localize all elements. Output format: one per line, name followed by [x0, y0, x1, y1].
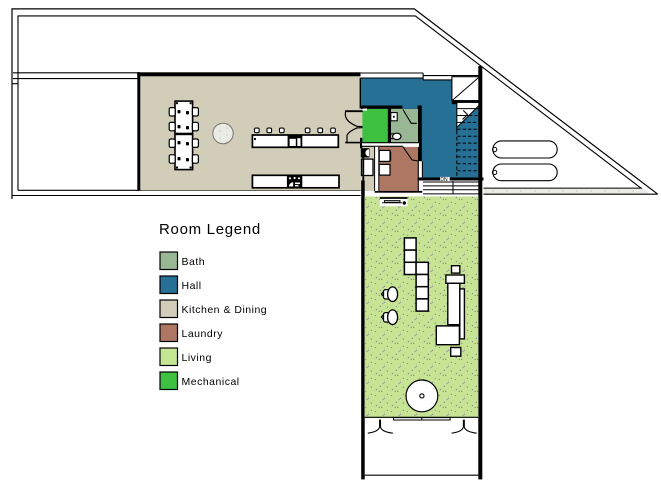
- svg-text:Laundry: Laundry: [182, 328, 224, 340]
- svg-text:Living: Living: [182, 352, 212, 364]
- svg-text:Kitchen & Dining: Kitchen & Dining: [182, 304, 268, 316]
- svg-text:Hall: Hall: [182, 280, 202, 292]
- svg-text:Bath: Bath: [182, 256, 206, 268]
- svg-text:Room Legend: Room Legend: [159, 221, 261, 238]
- svg-text:Mechanical: Mechanical: [182, 376, 240, 388]
